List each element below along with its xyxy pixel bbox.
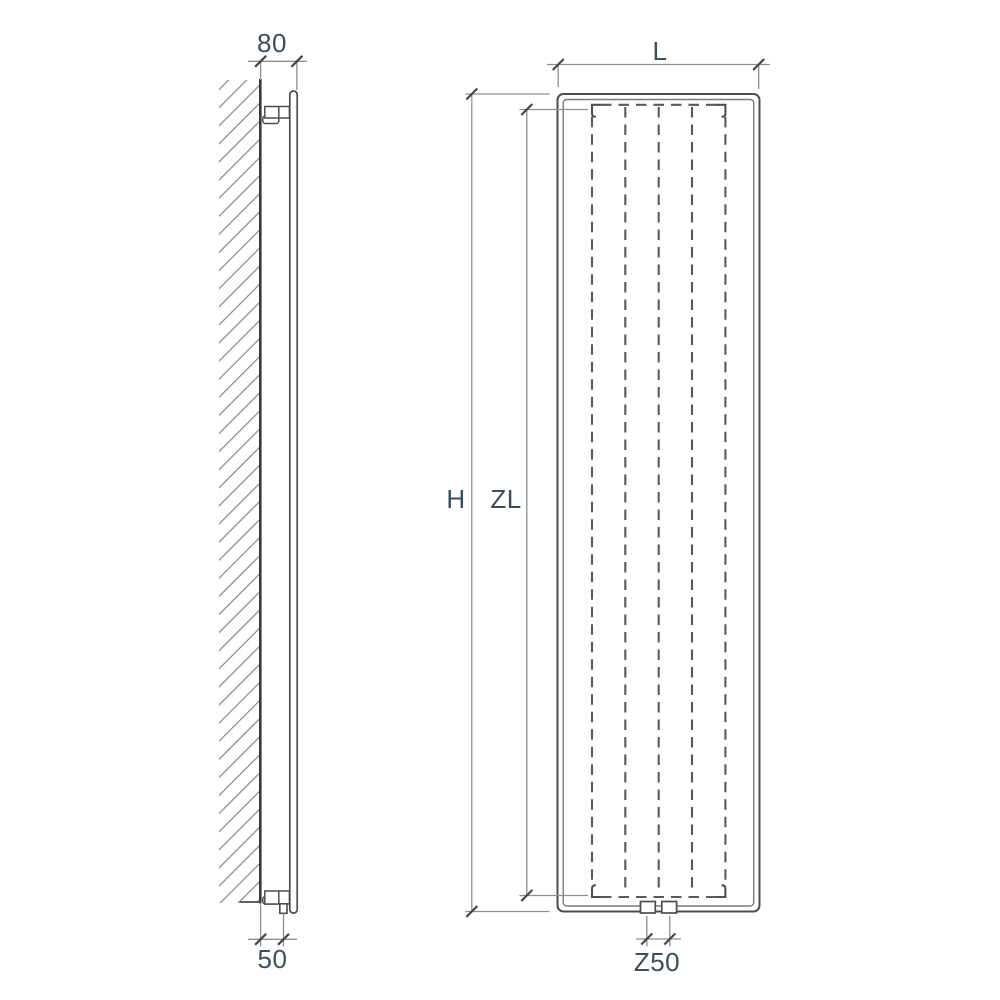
label-width-L: L [653,36,668,66]
drawing-svg: 80 50 L H ZL Z50 [0,0,1000,1000]
front-connection-stub-right [662,902,677,914]
dim-connection-Z50 [636,916,681,947]
label-clearance-50: 50 [258,944,288,974]
label-depth-80: 80 [257,28,287,58]
side-connection-stub [280,904,287,914]
label-height-H: H [446,484,465,514]
radiator-panel-profile [290,91,297,913]
radiator-technical-drawing: 80 50 L H ZL Z50 [0,0,1000,1000]
front-view [558,94,760,913]
label-element-height-ZL: ZL [490,484,521,514]
label-connection-Z50: Z50 [634,947,680,977]
bottom-bracket-plate [265,891,290,904]
front-connection-stub-left [641,902,656,914]
wall-hatch [219,80,260,903]
side-view [219,79,297,913]
top-bracket-plate [265,107,290,119]
